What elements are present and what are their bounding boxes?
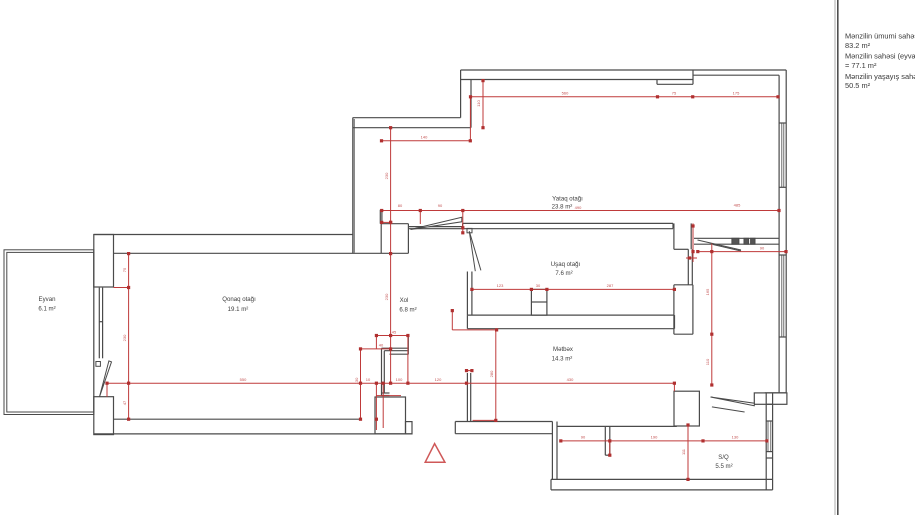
svg-text:90: 90 [438,203,443,208]
svg-text:90: 90 [581,435,586,440]
svg-text:230: 230 [122,334,127,341]
svg-text:550: 550 [240,377,247,382]
svg-text:140: 140 [421,135,428,140]
svg-text:47: 47 [122,400,127,405]
svg-text:175: 175 [733,91,740,96]
svg-text:165: 165 [705,288,710,295]
svg-text:80: 80 [398,203,403,208]
svg-text:123: 123 [497,283,504,288]
svg-text:230: 230 [384,172,389,179]
svg-text:Xol: Xol [400,297,409,304]
svg-text:560: 560 [562,91,569,96]
svg-text:6.8 m²: 6.8 m² [399,307,416,314]
svg-text:30: 30 [536,283,541,288]
svg-text:23.8 m²: 23.8 m² [552,203,573,210]
svg-text:111: 111 [681,448,686,455]
svg-text:120: 120 [435,377,442,382]
svg-text:430: 430 [567,377,574,382]
svg-text:50.5 m²: 50.5 m² [845,81,871,90]
svg-text:130: 130 [732,435,739,440]
svg-text:Mənzilin ümumi sahəsi: Mənzilin ümumi sahəsi [845,32,915,41]
svg-text:Mənzilin yaşayış sahəsi: Mənzilin yaşayış sahəsi [845,72,915,81]
svg-text:5.5 m²: 5.5 m² [715,463,732,470]
svg-text:280: 280 [489,370,494,377]
svg-text:190: 190 [651,435,658,440]
svg-text:110: 110 [476,100,481,107]
svg-text:40: 40 [379,343,384,348]
svg-text:287: 287 [607,283,614,288]
svg-text:Eyvan: Eyvan [39,296,56,303]
svg-text:Uşaq otağı: Uşaq otağı [551,261,581,268]
svg-text:230: 230 [384,293,389,300]
svg-text:= 77.1 m²: = 77.1 m² [845,61,877,70]
svg-text:110: 110 [705,358,710,365]
svg-text:130: 130 [354,377,359,384]
svg-text:Qonaq otağı: Qonaq otağı [222,296,256,303]
svg-text:45: 45 [392,330,397,335]
svg-text:83.2 m²: 83.2 m² [845,41,871,50]
svg-text:S/Q: S/Q [718,454,729,461]
svg-text:14.3 m²: 14.3 m² [552,356,573,363]
svg-text:10: 10 [366,377,371,382]
svg-text:Mətbəx: Mətbəx [553,346,573,353]
svg-text:19.1 m²: 19.1 m² [228,306,249,313]
svg-text:7.6 m²: 7.6 m² [555,270,572,277]
svg-text:6.1 m²: 6.1 m² [38,306,55,313]
svg-text:75: 75 [672,91,677,96]
svg-text:490: 490 [575,205,582,210]
svg-text:75: 75 [122,267,127,272]
svg-text:90: 90 [760,246,765,251]
svg-text:100: 100 [396,377,403,382]
svg-text:485: 485 [734,203,741,208]
svg-text:Mənzilin sahəsi (eyvansız): Mənzilin sahəsi (eyvansız) [845,52,915,61]
svg-text:Yataq otağı: Yataq otağı [552,196,583,203]
